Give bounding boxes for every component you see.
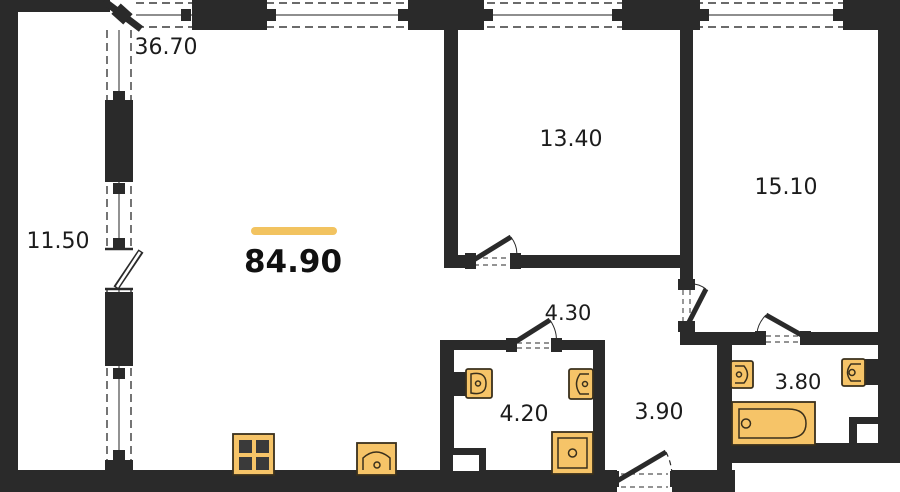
wall-bedroom2-left	[680, 28, 693, 283]
floor-plan: 36.70 11.50 13.40 15.10 4.30 4.20 3.90 3…	[0, 0, 900, 492]
washbasin-icon	[842, 359, 878, 386]
door-bedroom-2	[678, 279, 706, 332]
room-area-label-living: 36.70	[135, 35, 198, 60]
wall-bathroom-right	[593, 340, 605, 470]
labels: 36.70 11.50 13.40 15.10 4.30 4.20 3.90 3…	[27, 35, 822, 427]
wall-outer-bottom-right	[672, 470, 735, 492]
door-ensuite	[755, 315, 811, 345]
pier-top-3	[622, 0, 700, 30]
toilet-icon	[454, 369, 492, 398]
shower-icon	[552, 432, 593, 474]
room-area-label-ensuite: 3.80	[775, 370, 822, 394]
door-latch	[678, 279, 695, 290]
door-entrance	[609, 452, 680, 487]
wall-bedroom1-bottom	[516, 255, 692, 268]
wall-ensuite-bottom	[717, 443, 900, 463]
pier-left-3	[105, 460, 133, 492]
door-swing-arc	[757, 315, 766, 333]
wall-ensuite-top-right	[806, 332, 900, 345]
glazing-tick	[483, 9, 493, 21]
door-latch	[755, 331, 766, 345]
kitchen-sink-icon	[357, 443, 396, 475]
wall-balcony-top	[0, 0, 110, 12]
total-area-accent-line	[251, 227, 337, 235]
glazing-tick	[699, 9, 709, 21]
room-area-label-corridor: 3.90	[635, 400, 684, 425]
glazing-tick	[113, 450, 125, 460]
wall-corridor-right	[717, 345, 732, 472]
wall-outer-right	[878, 28, 900, 463]
wall-bedroom1-left	[444, 28, 458, 268]
wall-outer-left	[0, 0, 18, 492]
room-area-label-balcony: 11.50	[27, 229, 90, 254]
glazing-tick	[113, 91, 125, 102]
glazing-tick	[113, 238, 125, 248]
bathtub-icon	[732, 402, 815, 445]
glazing-tick	[266, 9, 276, 21]
door-corner-balcony	[104, 1, 141, 29]
total-area: 84.90	[244, 227, 342, 280]
room-area-label-hall: 4.30	[545, 301, 592, 325]
door-leaf	[617, 452, 666, 481]
shaft-ensuite	[857, 424, 878, 443]
shaft-bathroom	[453, 455, 479, 471]
washbasin-icon	[731, 361, 753, 388]
wall-ensuite-top-left	[680, 332, 758, 345]
glazing-tick	[612, 9, 622, 21]
glazing-tick	[113, 183, 125, 194]
washbasin-icon	[569, 369, 593, 399]
door-bedroom-1	[465, 237, 521, 269]
floor-plan-drawing: 36.70 11.50 13.40 15.10 4.30 4.20 3.90 3…	[0, 0, 900, 492]
glazing-tick	[398, 9, 408, 21]
door-leaf	[766, 315, 805, 337]
total-area-value: 84.90	[244, 244, 342, 280]
pier-top-1	[192, 0, 267, 30]
glazing-tick	[181, 9, 191, 21]
room-area-label-bedroom1: 13.40	[540, 127, 603, 152]
room-area-label-bathroom: 4.20	[500, 402, 549, 427]
pier-left-1	[105, 100, 133, 182]
pier-left-2	[105, 292, 133, 366]
glazing-tick	[833, 9, 843, 21]
glazing-tick	[113, 368, 125, 379]
door-latch	[510, 253, 521, 269]
wall-bathroom-top-left	[440, 340, 512, 350]
wall-outer-bottom-left	[0, 470, 617, 492]
room-area-label-bedroom2: 15.10	[755, 175, 818, 200]
pier-top-2	[408, 0, 484, 30]
stove-icon	[233, 434, 274, 475]
door-balcony	[103, 249, 141, 289]
pier-top-corner	[843, 0, 900, 30]
